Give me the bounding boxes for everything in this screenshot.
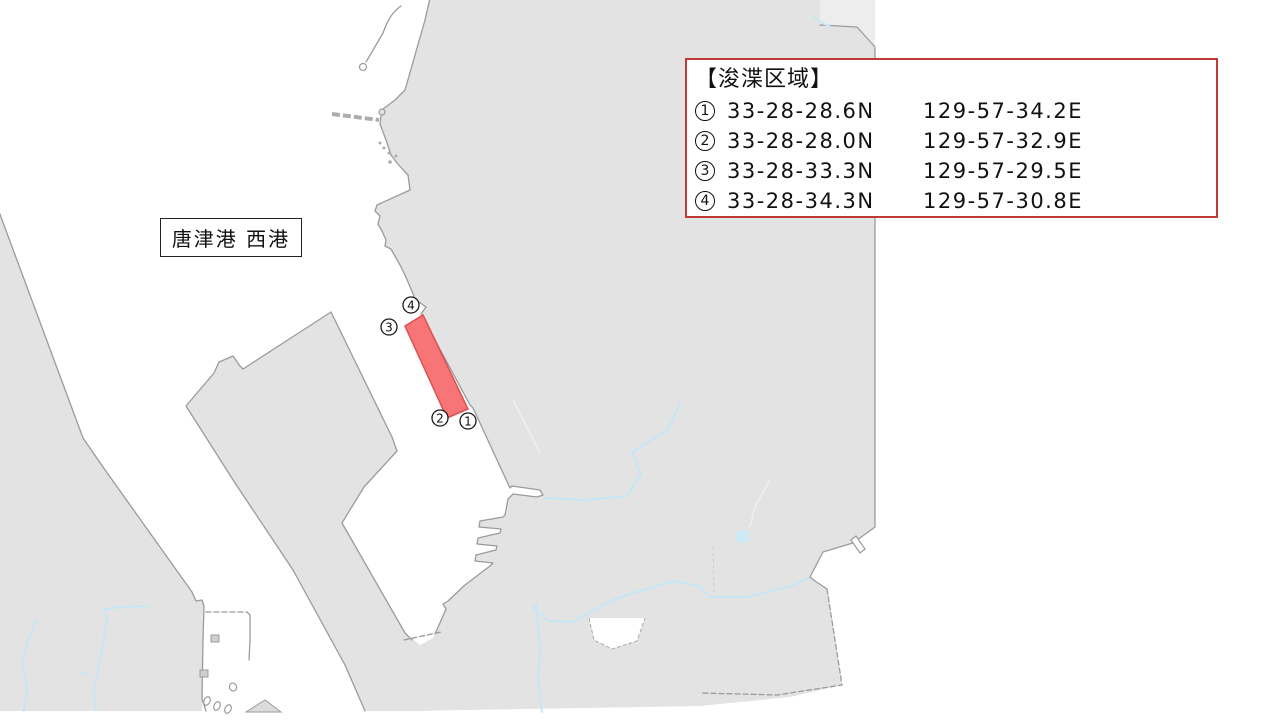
islet-dot-3 <box>388 152 391 155</box>
legend-entry-lon: 129-57-30.8E <box>923 186 1083 216</box>
pond <box>735 531 749 542</box>
legend-entry-lat: 33-28-28.6N <box>727 96 923 126</box>
legend-row: 3 33-28-33.3N 129-57-29.5E <box>695 156 1208 186</box>
moored-boat-4 <box>228 682 237 692</box>
legend-entry-number: 1 <box>695 101 715 121</box>
dredge-point-marker-4: 4 <box>403 297 419 313</box>
legend-rows: 1 33-28-28.6N 129-57-34.2E 2 33-28-28.0N… <box>695 96 1208 216</box>
legend-entry-lat: 33-28-28.0N <box>727 126 923 156</box>
legend-title: 【浚渫区域】 <box>695 63 1208 96</box>
channel-marker-buoy <box>360 64 367 71</box>
legend-entry-lon: 129-57-34.2E <box>923 96 1083 126</box>
dock-structure-1 <box>211 635 219 642</box>
islet-dot-2 <box>383 147 386 150</box>
legend-entry-lon: 129-57-32.9E <box>923 126 1083 156</box>
islet-dot-5 <box>395 155 398 158</box>
legend-entry-number: 4 <box>695 191 715 211</box>
dredge-point-marker-3: 3 <box>381 319 397 335</box>
legend-row: 1 33-28-28.6N 129-57-34.2E <box>695 96 1208 126</box>
basin-islet <box>246 700 281 712</box>
dredge-point-marker-2: 2 <box>432 410 448 426</box>
dredge-point-marker-1: 1 <box>460 413 476 429</box>
dredging-area-legend: 【浚渫区域】 1 33-28-28.6N 129-57-34.2E 2 33-2… <box>685 58 1218 218</box>
islet-dot-4 <box>388 160 392 164</box>
wedge-pier <box>186 312 430 711</box>
islet-dot-1 <box>379 142 382 145</box>
marker-number: 3 <box>385 321 393 335</box>
legend-row: 2 33-28-28.0N 129-57-32.9E <box>695 126 1208 156</box>
marker-number: 1 <box>464 415 472 429</box>
dock-right-wall <box>247 612 250 660</box>
small-pier-southeast <box>851 536 865 553</box>
breakwater-knob <box>379 109 385 115</box>
dock-structure-2 <box>200 670 208 677</box>
legend-entry-lat: 33-28-34.3N <box>727 186 923 216</box>
legend-entry-lon: 129-57-29.5E <box>923 156 1083 186</box>
port-name-text: 唐津港 西港 <box>172 223 290 252</box>
marker-number: 4 <box>407 299 415 313</box>
port-name-label: 唐津港 西港 <box>160 218 302 257</box>
breakwater <box>332 114 379 120</box>
legend-row: 4 33-28-34.3N 129-57-30.8E <box>695 186 1208 216</box>
moored-boat-3 <box>223 704 232 715</box>
moored-boat-2 <box>212 701 221 712</box>
legend-entry-number: 2 <box>695 131 715 151</box>
legend-entry-lat: 33-28-33.3N <box>727 156 923 186</box>
marker-number: 2 <box>436 412 444 426</box>
channel-marker-line <box>366 6 401 62</box>
legend-entry-number: 3 <box>695 161 715 181</box>
port-map: 4321 唐津港 西港 【浚渫区域】 1 33-28-28.6N 129-57-… <box>0 0 1280 720</box>
